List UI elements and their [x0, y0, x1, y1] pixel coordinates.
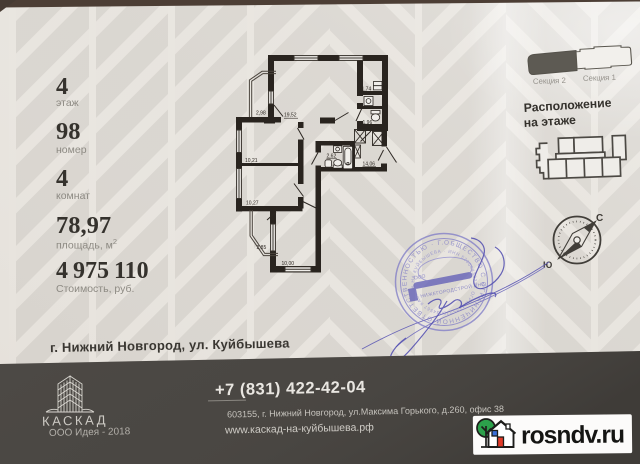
- svg-text:ООО: ООО: [413, 273, 426, 281]
- svg-text:2,85: 2,85: [257, 245, 267, 251]
- svg-text:Секция 2: Секция 2: [533, 76, 566, 86]
- svg-text:Секция 1: Секция 1: [583, 73, 616, 83]
- svg-text:10,21: 10,21: [245, 158, 258, 164]
- svg-text:С: С: [596, 213, 603, 224]
- svg-text:10,27: 10,27: [246, 201, 259, 207]
- svg-text:на этаже: на этаже: [523, 113, 576, 130]
- svg-text:Расположение: Расположение: [523, 96, 612, 115]
- svg-text:10,00: 10,00: [282, 261, 295, 267]
- svg-text:2,98: 2,98: [256, 111, 266, 117]
- svg-text:19,52: 19,52: [284, 113, 297, 119]
